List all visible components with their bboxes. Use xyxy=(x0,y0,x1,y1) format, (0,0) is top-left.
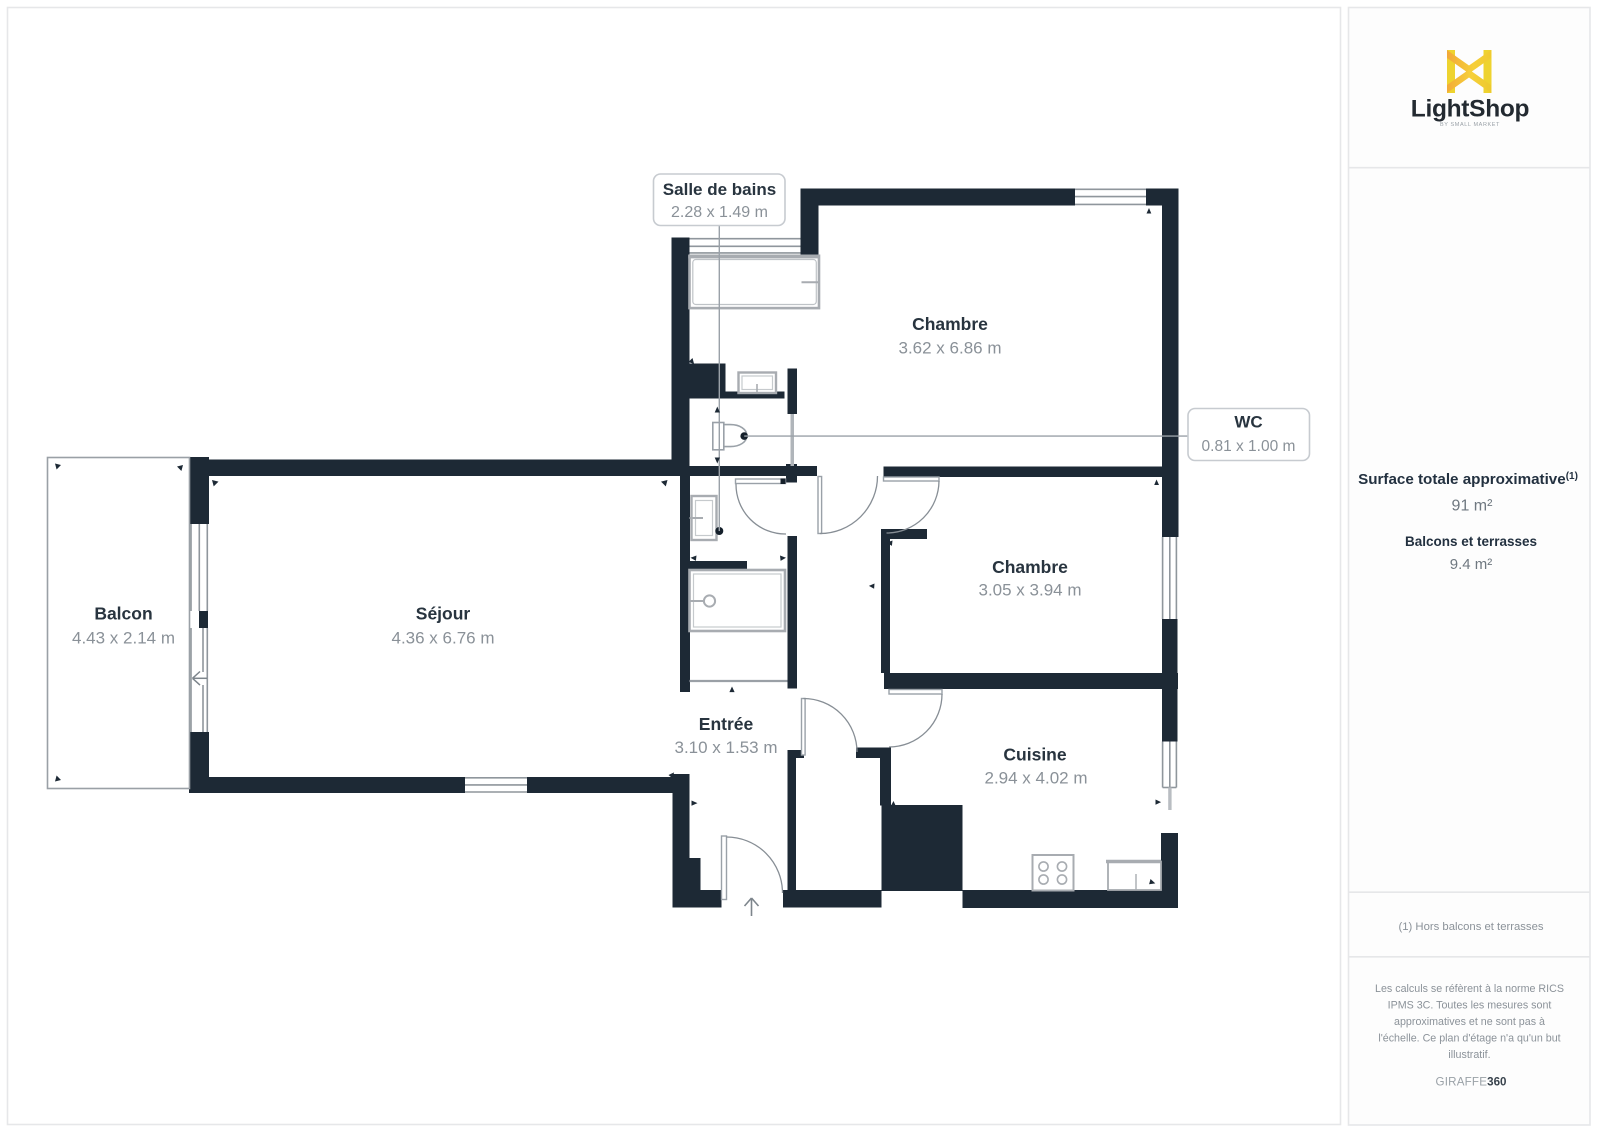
svg-text:illustratif.: illustratif. xyxy=(1448,1049,1490,1061)
svg-text:Séjour: Séjour xyxy=(416,604,471,624)
svg-text:IPMS 3C. Toutes les mesures so: IPMS 3C. Toutes les mesures sont xyxy=(1388,1000,1552,1012)
svg-text:0.81 x 1.00 m: 0.81 x 1.00 m xyxy=(1202,438,1296,455)
svg-text:Balcon: Balcon xyxy=(94,604,152,624)
svg-text:3.10 x 1.53 m: 3.10 x 1.53 m xyxy=(674,738,777,757)
svg-text:GIRAFFE360: GIRAFFE360 xyxy=(1436,1076,1507,1089)
svg-text:2.94 x 4.02 m: 2.94 x 4.02 m xyxy=(984,769,1087,788)
svg-text:9.4 m²: 9.4 m² xyxy=(1450,556,1493,573)
svg-text:Chambre: Chambre xyxy=(992,557,1068,577)
svg-text:approximatives et ne sont pas: approximatives et ne sont pas à xyxy=(1394,1016,1545,1028)
svg-text:l'échelle. Ce plan d'étage n'a: l'échelle. Ce plan d'étage n'a qu'un but xyxy=(1378,1033,1560,1045)
svg-text:Cuisine: Cuisine xyxy=(1003,745,1066,765)
svg-text:Surface totale approximative(1: Surface totale approximative(1) xyxy=(1358,471,1578,488)
svg-text:(1) Hors balcons et terrasses: (1) Hors balcons et terrasses xyxy=(1398,921,1543,933)
svg-text:4.43 x 2.14 m: 4.43 x 2.14 m xyxy=(72,629,175,648)
svg-text:LightShop: LightShop xyxy=(1411,96,1529,123)
svg-text:4.36 x 6.76 m: 4.36 x 6.76 m xyxy=(391,629,494,648)
svg-text:BY SMALL MARKET: BY SMALL MARKET xyxy=(1440,122,1500,128)
svg-text:Les calculs se réfèrent à la n: Les calculs se réfèrent à la norme RICS xyxy=(1375,983,1564,995)
svg-text:Chambre: Chambre xyxy=(912,314,988,334)
svg-text:3.05 x 3.94 m: 3.05 x 3.94 m xyxy=(978,581,1081,600)
svg-text:Entrée: Entrée xyxy=(699,714,754,734)
svg-text:Balcons et terrasses: Balcons et terrasses xyxy=(1405,534,1537,549)
svg-text:WC: WC xyxy=(1234,413,1262,432)
svg-text:3.62 x 6.86 m: 3.62 x 6.86 m xyxy=(898,339,1001,358)
svg-text:91 m²: 91 m² xyxy=(1452,498,1494,515)
svg-text:Salle de bains: Salle de bains xyxy=(663,180,776,199)
svg-text:2.28 x 1.49 m: 2.28 x 1.49 m xyxy=(671,204,768,221)
